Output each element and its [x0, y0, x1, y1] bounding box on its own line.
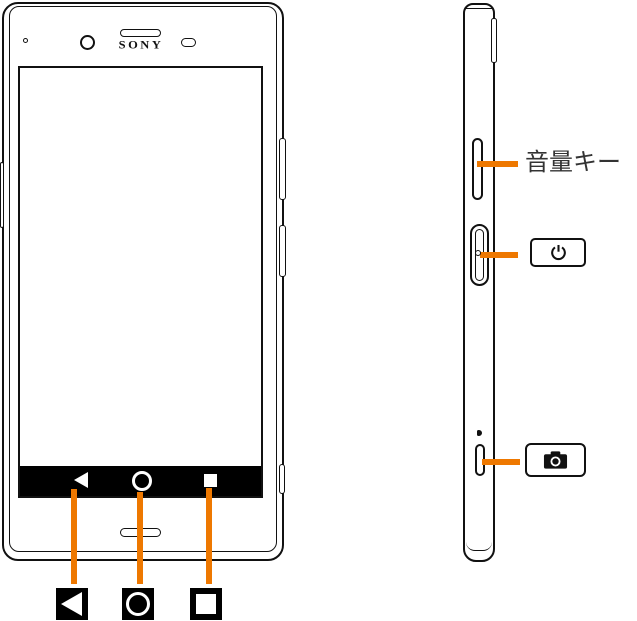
volume-key-label: 音量キー [525, 149, 637, 177]
volume-key [472, 138, 483, 200]
callout-line-recent [206, 488, 212, 584]
sim-cover-seam [0, 162, 4, 228]
callout-line-volume [477, 161, 518, 167]
camera-key-edge [279, 464, 285, 494]
callout-line-back [71, 489, 77, 584]
side-top-seam [466, 8, 492, 9]
power-key-edge [279, 225, 286, 277]
side-view: 音量キー [0, 0, 637, 621]
sim-tray-cover [491, 18, 497, 63]
callout-line-camera [482, 459, 520, 465]
camera-icon [543, 450, 568, 470]
camera-key-callout-box [525, 443, 586, 477]
side-bottom-seam [466, 540, 492, 551]
power-key-marker [475, 250, 481, 256]
callout-line-home [137, 492, 143, 584]
power-key-callout-box [530, 238, 586, 267]
callout-line-power [480, 252, 518, 258]
device-diagram: SONY [0, 0, 637, 621]
power-icon [549, 243, 568, 262]
volume-key-edge [279, 138, 286, 200]
